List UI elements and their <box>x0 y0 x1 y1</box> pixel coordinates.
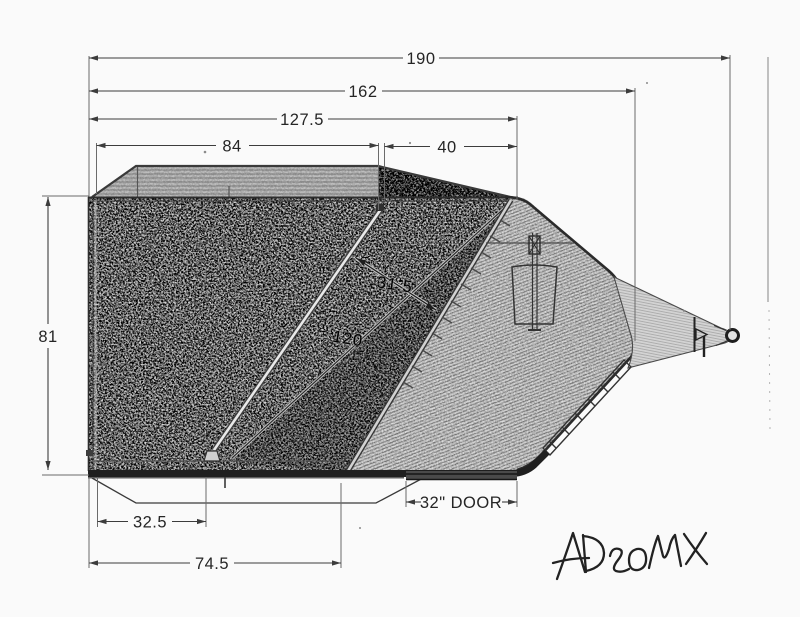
svg-text:81: 81 <box>38 328 57 346</box>
svg-text:74.5: 74.5 <box>195 555 229 573</box>
svg-text:40: 40 <box>437 139 456 157</box>
svg-text:32.5: 32.5 <box>133 514 167 532</box>
svg-text:32" DOOR: 32" DOOR <box>420 494 502 512</box>
svg-text:162: 162 <box>348 83 377 101</box>
svg-text:84: 84 <box>222 138 241 156</box>
svg-text:190: 190 <box>406 50 435 68</box>
svg-text:127.5: 127.5 <box>280 111 324 129</box>
